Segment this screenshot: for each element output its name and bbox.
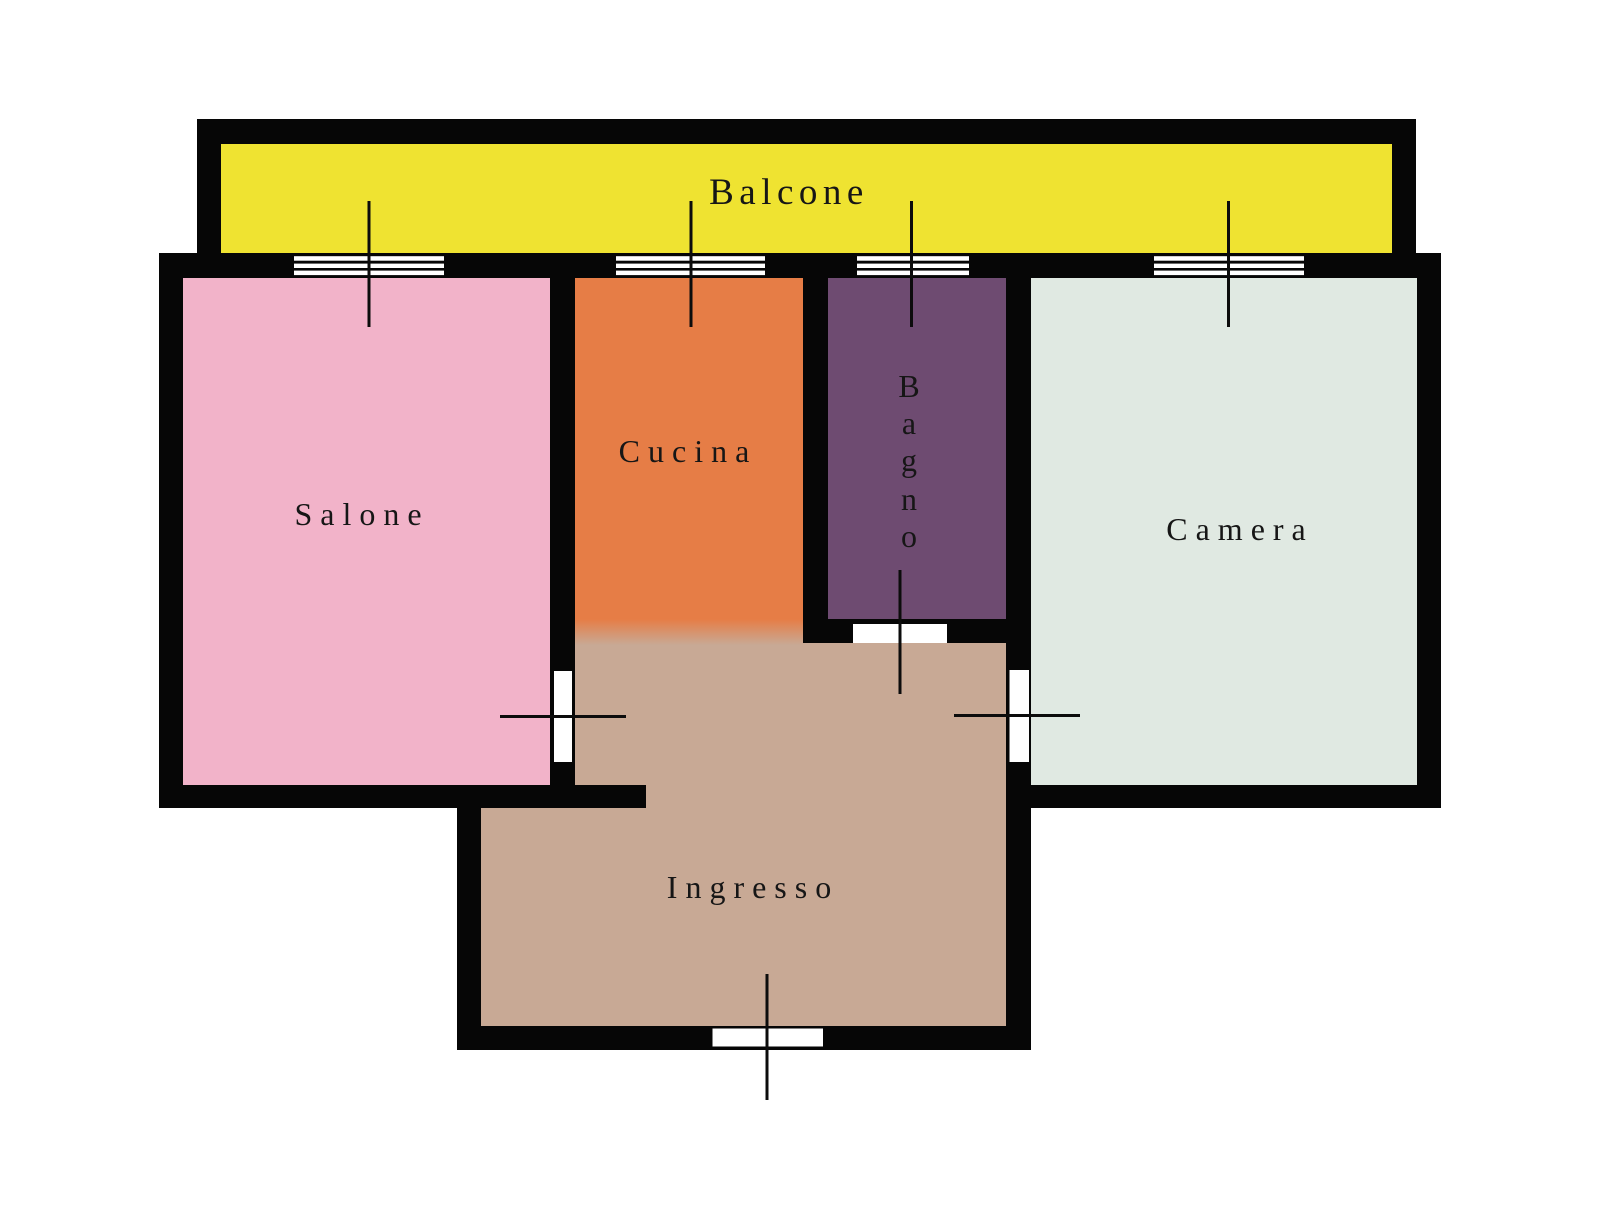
svg-text:n: n [901, 481, 917, 517]
svg-text:g: g [901, 442, 917, 478]
svg-text:Cucina: Cucina [619, 433, 758, 469]
svg-text:Balcone: Balcone [709, 172, 869, 213]
svg-text:o: o [901, 518, 917, 554]
svg-text:B: B [898, 368, 919, 404]
svg-text:Salone: Salone [294, 496, 429, 532]
svg-text:Ingresso: Ingresso [667, 869, 839, 905]
svg-text:a: a [902, 405, 916, 441]
svg-text:Camera: Camera [1166, 511, 1314, 547]
